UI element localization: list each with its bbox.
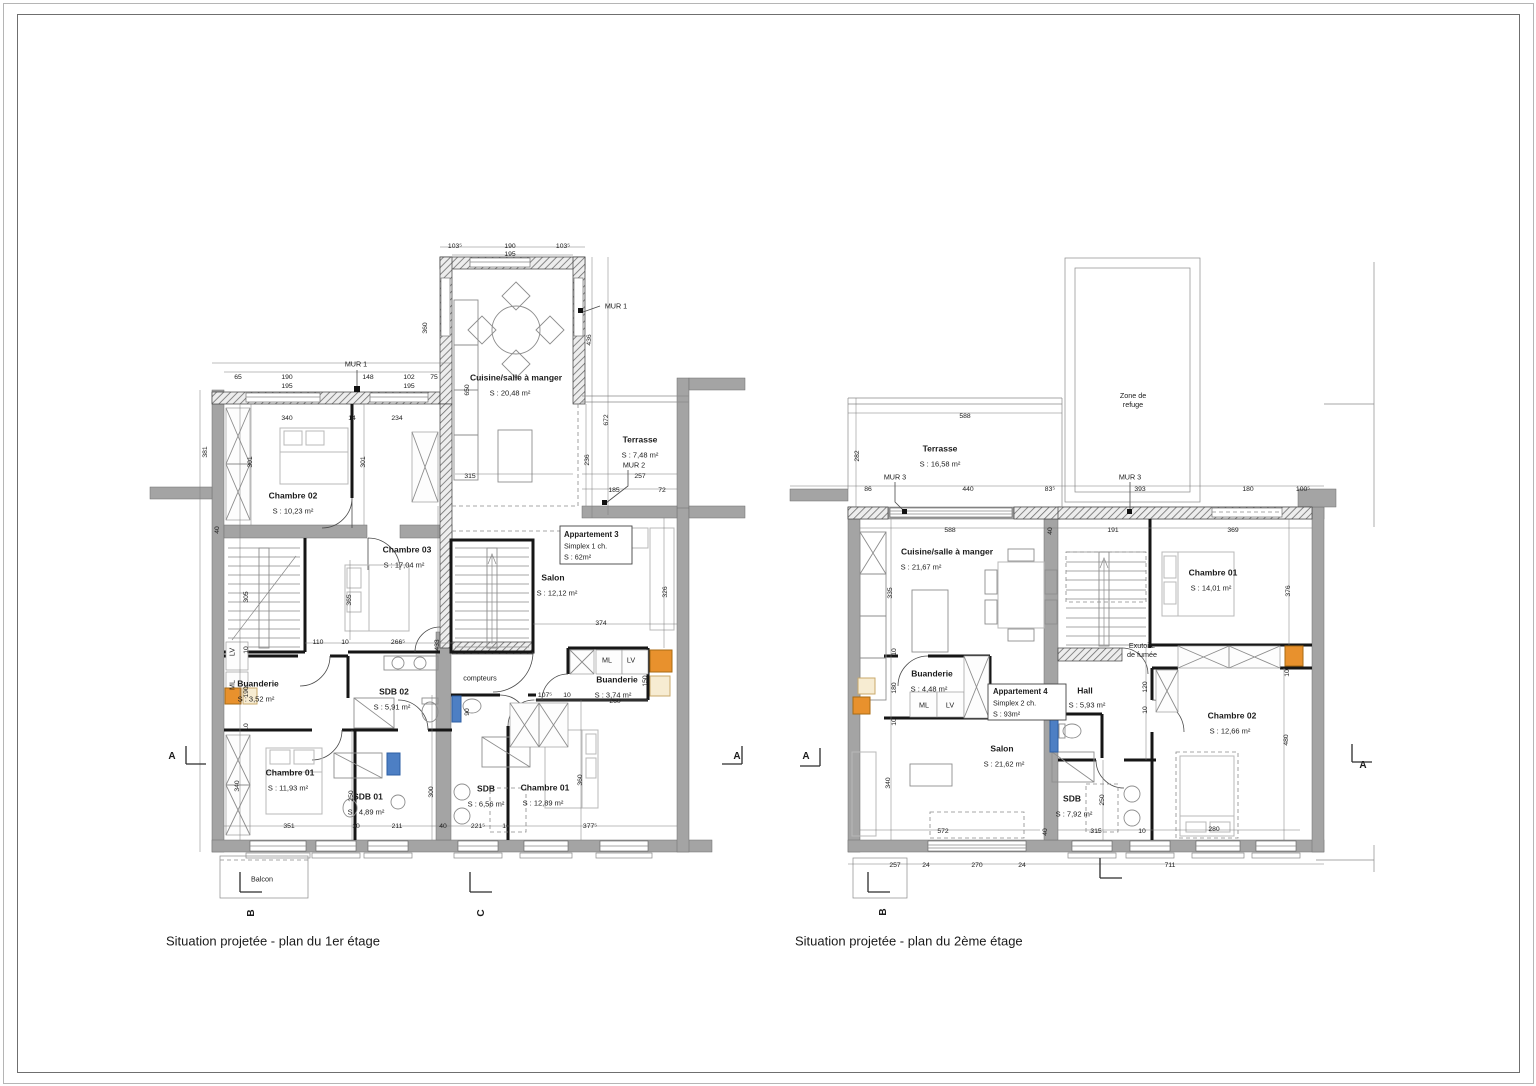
room-label: Chambre 02 [269,491,318,502]
room-label: Chambre 01 [1189,568,1238,579]
room-area: S : 21,67 m² [901,562,942,571]
wall-note: MUR 3 [884,473,906,482]
dimension-label: 672 [603,414,611,425]
dimension-label: 301 [360,456,368,467]
dimension-label: 711 [1165,862,1176,870]
dimension-label: 221⁵ [471,823,485,831]
dimension-label: 360 [422,322,430,333]
plan2-caption: Situation projetée - plan du 2ème étage [795,934,1023,949]
dimension-label: 10 [891,718,899,726]
room-area: S : 7,48 m² [622,450,659,459]
room-area: S : 4,89 m² [348,807,385,816]
dimension-label: 10 [1142,706,1150,714]
wall-note: MUR 1 [345,360,367,369]
note-label: Balcon [251,875,273,884]
room-area: S : 6,56 m² [468,799,505,808]
dimension-label: 10 [502,823,510,831]
dimension-label: 185 [608,487,619,495]
plan1-caption: Situation projetée - plan du 1er étage [166,934,380,949]
dimension-label: 250 [1099,794,1107,805]
note-label: LV [228,648,237,656]
dimension-label: 236 [584,454,592,465]
dimension-label: 195 [504,251,515,259]
note-label: ML [919,701,929,710]
dimension-label: 234 [391,415,402,423]
dimension-label: 195 [403,383,414,391]
dimension-label: 10 [891,648,899,656]
dimension-label: 440 [962,486,973,494]
dimension-label: 10 [1138,828,1146,836]
dimension-label: 90 [464,708,472,716]
drawing-sheet: .w{fill:#a4a4a4;stroke:#6e6e6e;stroke-wi… [0,0,1536,1086]
dimension-label: 572 [937,828,948,836]
dimension-label: 180 [1242,486,1253,494]
apartment-box-title: Appartement 4 [993,687,1048,697]
dimension-label: 211 [392,823,403,831]
apartment-box-title: Appartement 3 [564,530,619,540]
dimension-label: 340 [885,777,893,788]
dimension-label: 270 [971,862,982,870]
wall-note: MUR 2 [623,461,645,470]
dimension-label: 588 [959,413,970,421]
room-label: Chambre 03 [383,545,432,556]
room-area: S : 21,62 m² [984,759,1025,768]
apartment-box-line: S : 93m² [993,710,1020,719]
room-area: S : 16,58 m² [920,459,961,468]
dimension-label: 10 [243,646,251,654]
dimension-label: 148 [362,374,373,382]
room-label: Terrasse [623,435,658,446]
room-area: S : 3,74 m² [595,690,632,699]
section-label: A [1359,760,1366,773]
dimension-label: 40 [439,823,447,831]
dimension-label: 340 [281,415,292,423]
dimension-label: 102 [403,374,414,382]
note-label: LV [627,656,635,665]
dimension-label: 120 [1142,681,1150,692]
room-label: Buanderie [237,679,279,690]
room-label: Buanderie [911,669,953,680]
dimension-label: 257 [634,473,645,481]
section-label: B [246,909,259,916]
room-area: S : 12,89 m² [523,798,564,807]
dimension-label: 65 [234,374,242,382]
dimension-label: 376 [1285,585,1293,596]
room-area: S : 4,48 m² [911,684,948,693]
room-area: S : 5,93 m² [1069,700,1106,709]
room-area: S : 7,92 m² [1056,809,1093,818]
dimension-label: 10 [341,639,349,647]
dimension-label: 110 [313,639,324,647]
dimension-label: 335 [887,587,895,598]
room-label: SDB [477,784,495,795]
dimension-label: 257 [889,862,900,870]
dimension-label: 301 [247,456,255,467]
section-label: A [168,751,175,764]
room-label: SDB 01 [353,792,383,803]
note-label: ML [602,656,612,665]
dimension-label: 180 [891,682,899,693]
dimension-label: 377⁵ [583,823,597,831]
dimension-label: 86 [864,486,872,494]
dimension-label: 107⁵ [538,692,552,700]
room-area: S : 12,66 m² [1210,726,1251,735]
dimension-label: 190 [504,243,515,251]
dimension-label: 40 [1047,527,1055,535]
dimension-label: 191 [1107,527,1118,535]
room-label: Terrasse [923,444,958,455]
apartment-box-line: Simplex 1 ch. [564,542,607,551]
room-label: Chambre 02 [1208,711,1257,722]
dimension-label: 480 [1283,734,1291,745]
room-label: SDB [1063,794,1081,805]
note-label: LV [946,701,954,710]
dimension-label: 340 [234,780,242,791]
dimension-label: 75 [430,374,438,382]
dimension-label: 433 [434,639,442,650]
room-label: SDB 02 [379,687,409,698]
room-label: Salon [541,573,564,584]
room-label: Cuisine/salle à manger [470,373,562,384]
section-label: A [802,751,809,764]
dimension-label: 588 [944,527,955,535]
room-area: S : 11,93 m² [268,783,308,792]
wall-note: MUR 1 [605,302,627,311]
dimension-label: 351 [283,823,294,831]
apartment-box-line: S : 62m² [564,553,591,562]
apartment-box-line: Simplex 2 ch. [993,699,1036,708]
room-area: S : 5,91 m² [374,702,411,711]
note-label: compteurs [463,674,497,683]
room-label: Salon [990,744,1013,755]
room-area: S : 17,04 m² [384,560,425,569]
room-area: S : 14,01 m² [1191,583,1232,592]
dimension-label: 305 [243,591,251,602]
dimension-label: 360 [577,774,585,785]
dimension-label: 650 [464,384,472,395]
room-area: S : 20,48 m² [490,388,531,397]
dimension-label: 40 [1042,828,1050,836]
dimension-label: 190 [281,374,292,382]
dimension-label: 24 [922,862,930,870]
note-label: Exutoire de fumée [1127,641,1157,659]
dimension-label: 14 [348,415,356,423]
dimension-label: 72 [658,487,666,495]
section-label: C [476,909,489,916]
dimension-label: 195 [281,383,292,391]
dimension-label: 10 [352,823,360,831]
dimension-label: 266⁵ [391,639,405,647]
dimension-label: 260 [609,698,620,706]
note-label: ML [228,680,237,690]
dimension-label: 381 [202,446,210,457]
room-label: Cuisine/salle à manger [901,547,993,558]
dimension-label: 365 [346,594,354,605]
room-label: Chambre 01 [521,783,570,794]
room-label: Hall [1077,686,1093,697]
room-area: S : 3,52 m² [238,694,275,703]
dimension-label: 282 [854,450,862,461]
dimension-label: 10 [563,692,571,700]
wall-note: MUR 3 [1119,473,1141,482]
dimension-label: 190 [243,686,251,697]
dimension-label: 40 [214,526,222,534]
dimension-label: 250 [348,790,356,801]
dimension-label: 374 [595,620,606,628]
dimension-label: 315 [1090,828,1101,836]
dimension-label: 393 [1134,486,1145,494]
dimension-label: 10 [1284,669,1292,677]
dimension-label: 103⁵ [556,243,570,251]
section-label: A [733,751,740,764]
dimension-label: 280 [1208,826,1219,834]
dimension-label: 83⁵ [1045,486,1055,494]
room-label: Chambre 01 [266,768,315,779]
dimension-label: 326 [662,586,670,597]
dimension-label: 24 [1018,862,1026,870]
dimension-label: 150 [642,675,650,686]
note-label: Zone de refuge [1120,391,1146,409]
room-label: Buanderie [596,675,638,686]
dimension-label: 300 [428,786,436,797]
section-label: B [878,908,891,915]
dimension-label: 100⁵ [1296,486,1310,494]
room-area: S : 10,23 m² [273,506,314,515]
labels-layer: Cuisine/salle à mangerS : 20,48 m²Terras… [0,0,1536,1086]
dimension-label: 369 [1227,527,1238,535]
room-area: S : 12,12 m² [537,588,578,597]
dimension-label: 315 [464,473,475,481]
dimension-label: 103⁵ [448,243,462,251]
dimension-label: 436 [586,334,594,345]
dimension-label: 10 [243,723,251,731]
